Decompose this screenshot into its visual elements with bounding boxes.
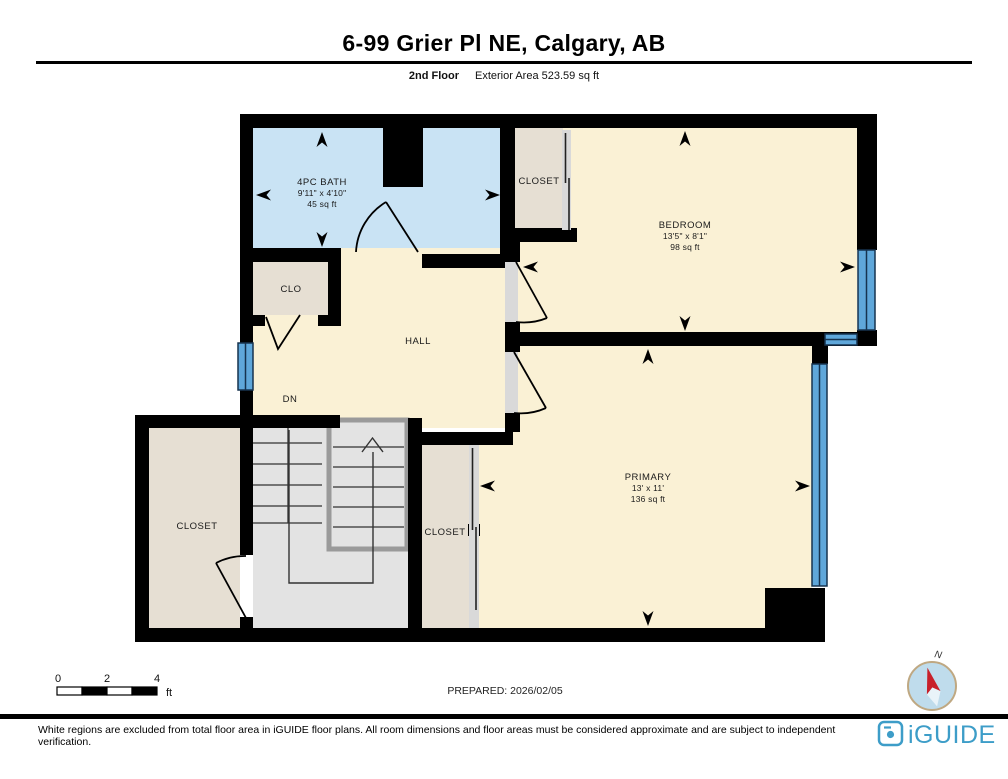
stair-right-flight <box>329 420 407 549</box>
wall-closet-right-top <box>408 432 513 445</box>
wall-bath-closet-divider <box>500 114 515 260</box>
bedroom-dimensions: 13'5" x 8'1" <box>663 231 707 241</box>
scale-seg-black <box>132 687 157 695</box>
floor-plan-svg: 4PC BATH 9'11" x 4'10" 45 sq ft CLOSET B… <box>0 0 1008 779</box>
scale-tick-2: 2 <box>104 673 110 685</box>
iguide-logo: iGUIDE <box>876 717 1004 754</box>
footer-divider <box>0 714 1008 719</box>
bedroom-window <box>858 250 875 330</box>
wall-hall-right-c <box>505 413 520 432</box>
bath-floor <box>253 128 512 256</box>
clo-label: CLO <box>280 284 301 295</box>
scale-tick-4: 4 <box>154 673 160 685</box>
bedroom-door-threshold <box>505 262 518 322</box>
scale-bar: 0 2 4 ft <box>55 673 172 699</box>
bath-area: 45 sq ft <box>307 199 337 209</box>
primary-dimensions: 13' x 11' <box>632 483 664 493</box>
bedroom-label: BEDROOM <box>659 220 712 231</box>
bath-dimensions: 9'11" x 4'10" <box>298 188 347 198</box>
hall-label: HALL <box>405 336 431 347</box>
primary-door-threshold <box>505 352 518 413</box>
wall-closet-left-right-stub <box>240 617 253 642</box>
closet-top-label: CLOSET <box>518 176 559 187</box>
scale-unit-label: ft <box>166 687 172 699</box>
wall-stairs-top-stub <box>253 415 340 428</box>
compass: N <box>908 649 956 710</box>
wall-bath-notch <box>383 114 423 187</box>
closet-left-label: CLOSET <box>176 521 217 532</box>
scale-seg-black <box>82 687 107 695</box>
bath-label: 4PC BATH <box>297 177 347 188</box>
compass-north-label: N <box>933 649 943 661</box>
primary-label: PRIMARY <box>625 472 672 483</box>
wall-top <box>240 114 877 128</box>
iguide-logo-svg: iGUIDE <box>876 717 1004 749</box>
wall-hall-right-b <box>505 322 520 352</box>
wall-left-upper <box>240 114 253 343</box>
wall-closet-top-bottom <box>505 228 577 242</box>
wall-midarea-bottom <box>422 254 512 268</box>
iguide-logo-text: iGUIDE <box>908 721 996 749</box>
wall-closet-left-right-upper <box>240 415 253 555</box>
wall-closet-left-top <box>135 415 253 428</box>
scale-seg-white <box>57 687 82 695</box>
primary-window <box>812 364 827 586</box>
footer-disclaimer: White regions are excluded from total fl… <box>38 724 848 748</box>
wall-clo-right <box>328 248 341 325</box>
hall-window <box>238 343 253 390</box>
wall-clo-bottom-right-stub <box>318 315 341 326</box>
closet-right-label: CLOSET <box>424 527 465 538</box>
wall-left-outer <box>135 415 149 642</box>
wall-clo-bottom-left-stub <box>253 315 265 326</box>
dn-label: DN <box>283 394 298 405</box>
wall-bath-bottom <box>253 248 341 262</box>
iguide-logo-icon-dot <box>887 731 894 738</box>
bedroom-area: 98 sq ft <box>670 242 700 252</box>
primary-area: 136 sq ft <box>631 494 666 504</box>
primary-floor-left <box>479 445 519 628</box>
wall-bedroom-right-upper <box>857 114 877 250</box>
scale-tick-0: 0 <box>55 673 61 685</box>
wall-primary-corner-block <box>765 588 825 640</box>
wall-bottom <box>135 628 825 642</box>
closet-right-slider-track <box>469 445 479 628</box>
bedroom-window-lower <box>825 334 857 345</box>
wall-stairs-right <box>408 418 422 640</box>
prepared-date: PREPARED: 2026/02/05 <box>447 685 563 697</box>
scale-seg-white <box>107 687 132 695</box>
